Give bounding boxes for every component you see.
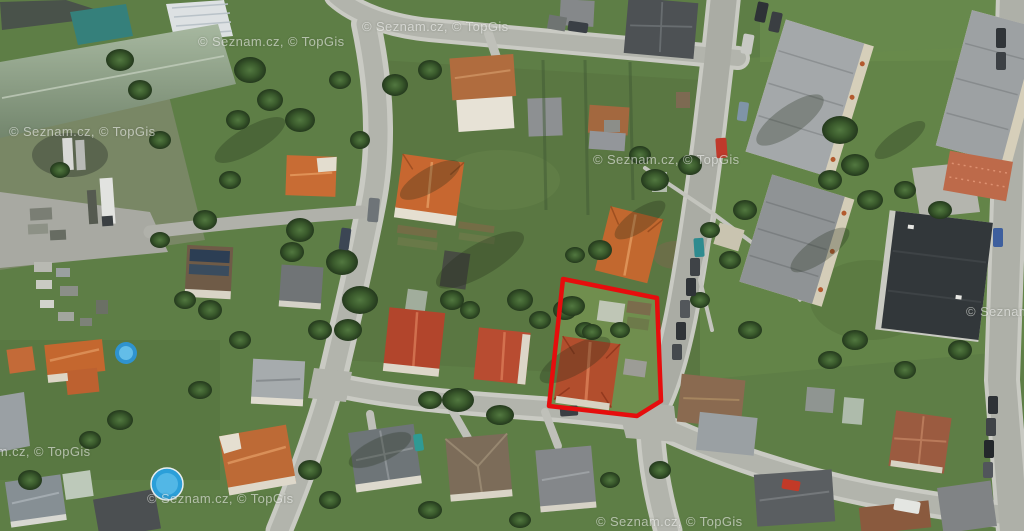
greenhouse-right-bottom <box>842 397 864 425</box>
shed-right-bottom <box>805 387 835 413</box>
house-bottom-center-2 <box>445 434 512 502</box>
house-red-center-1 <box>383 307 445 377</box>
house-below-road-3 <box>937 480 997 531</box>
house-orange-small-west <box>6 346 35 373</box>
greenhouse-bottom-left <box>62 470 93 500</box>
house-right-bottom-2 <box>888 410 951 473</box>
house-bottom-center-3 <box>535 446 596 513</box>
map-viewport[interactable]: © Seznam.cz, © TopGis © Seznam.cz, © Top… <box>0 0 1024 531</box>
building-dark-roof <box>875 210 993 342</box>
house-gray-street-west <box>279 265 324 310</box>
aerial-photo <box>0 0 1024 531</box>
house-bottom-left-big <box>219 425 296 496</box>
house-red-center-2 <box>474 327 531 384</box>
house-white-orange-top <box>449 54 518 132</box>
house-below-road-1 <box>754 469 835 526</box>
house-dark-top <box>624 0 699 59</box>
house-orange-street-west <box>285 155 336 197</box>
house-solar-roof <box>185 245 234 299</box>
house-white-street-west <box>251 359 305 407</box>
